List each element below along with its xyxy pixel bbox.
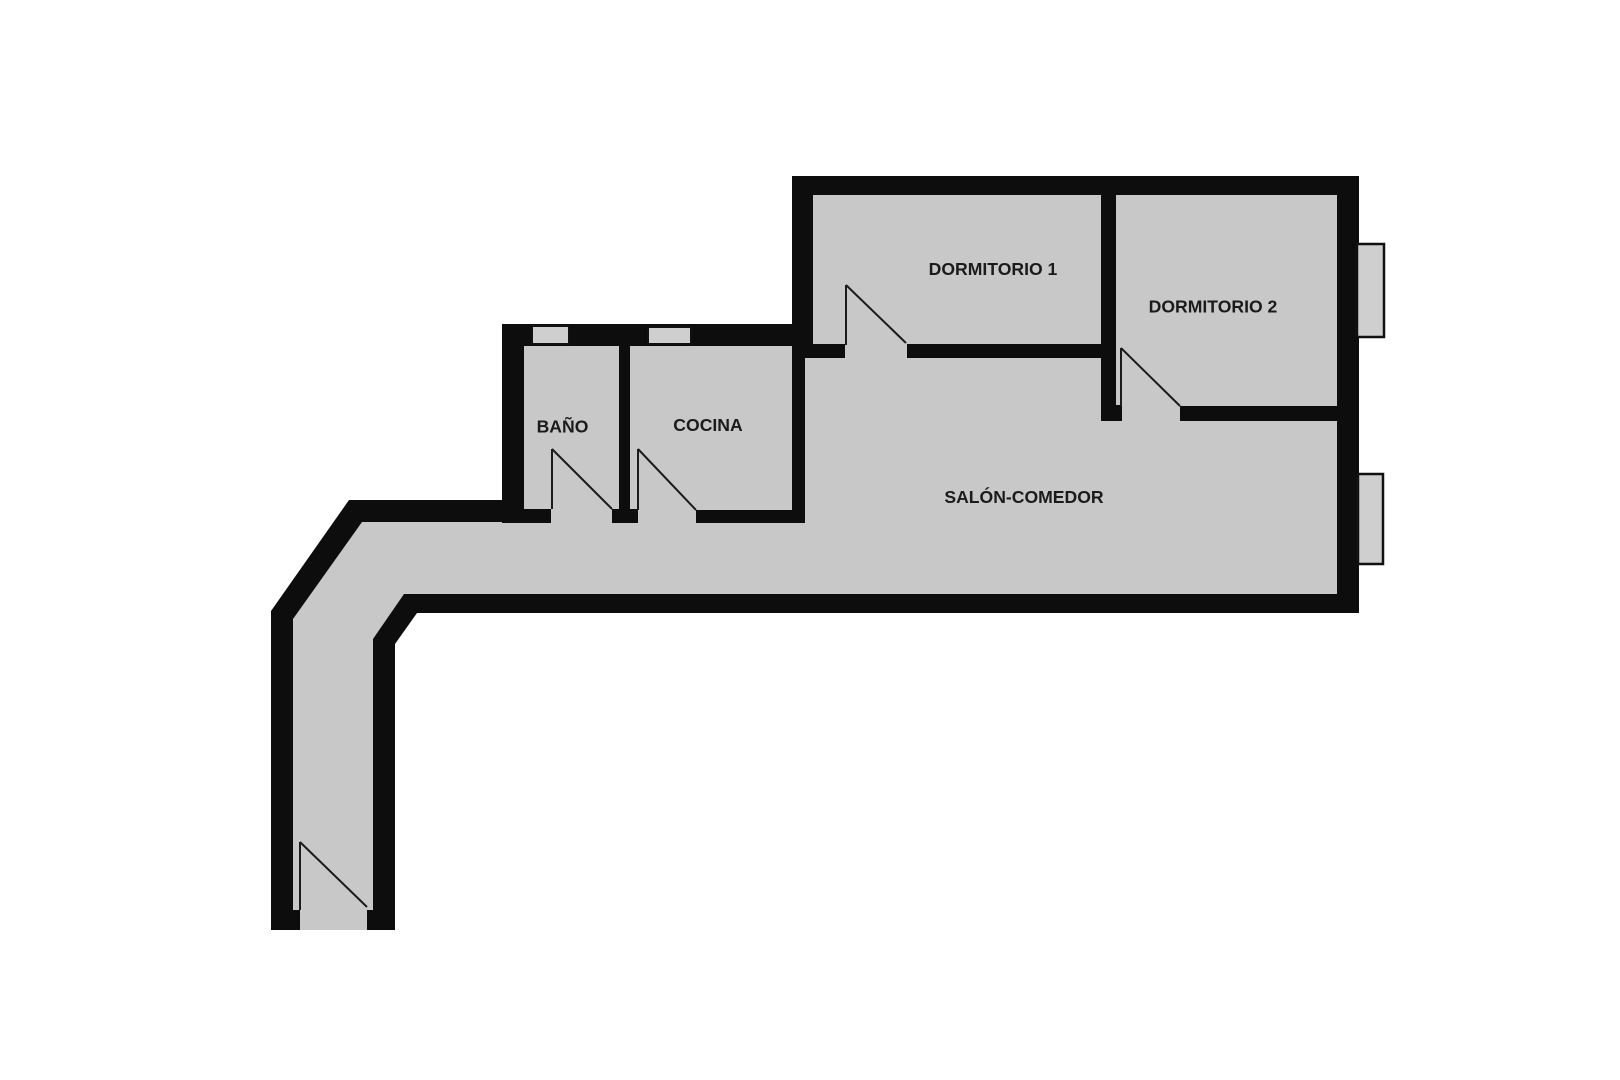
svg-text:COCINA: COCINA [673,415,743,435]
svg-text:DORMITORIO 1: DORMITORIO 1 [929,259,1058,279]
svg-text:SALÓN-COMEDOR: SALÓN-COMEDOR [944,486,1104,507]
svg-text:DORMITORIO 2: DORMITORIO 2 [1149,297,1278,317]
svg-text:BAÑO: BAÑO [537,416,589,437]
